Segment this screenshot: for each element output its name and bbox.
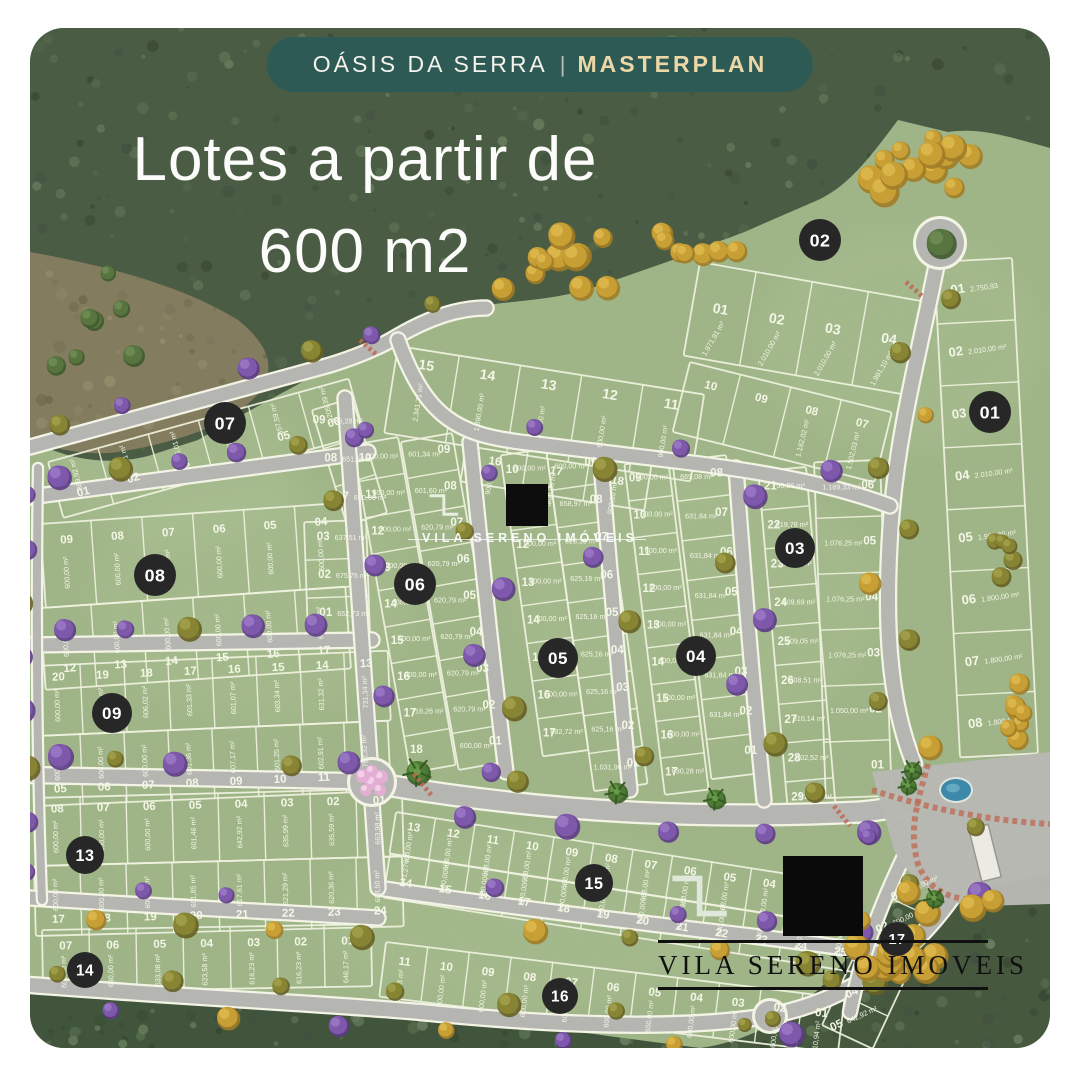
headline-line1: Lotes a partir de [55, 114, 675, 206]
svg-text:600,00 m²: 600,00 m² [50, 878, 60, 911]
svg-text:15: 15 [216, 652, 230, 665]
svg-text:600,00 m²: 600,00 m² [649, 583, 682, 592]
svg-text:608,51 m²: 608,51 m² [789, 675, 822, 684]
svg-text:600,00 m²: 600,00 m² [654, 620, 687, 629]
plan-title-banner: OÁSIS DA SERRA | MASTERPLAN [267, 37, 813, 92]
svg-text:19: 19 [96, 669, 109, 682]
masterplan-poster: 01889,92 m²02625,21 m²03706,01 m²04786,8… [0, 0, 1080, 1080]
svg-text:15: 15 [417, 356, 435, 374]
svg-text:625,16 m²: 625,16 m² [586, 687, 619, 696]
svg-text:03: 03 [824, 319, 842, 337]
banner-separator: | [560, 52, 566, 78]
svg-text:600,00 m²: 600,00 m² [640, 509, 673, 518]
svg-text:02: 02 [810, 230, 831, 250]
svg-text:1.076,25 m²: 1.076,25 m² [828, 650, 867, 659]
svg-text:05: 05 [54, 783, 68, 796]
svg-text:1.076,25 m²: 1.076,25 m² [826, 594, 865, 603]
svg-text:682,72 m²: 682,72 m² [550, 727, 583, 736]
svg-text:08: 08 [111, 530, 125, 543]
svg-text:601,25 m²: 601,25 m² [271, 738, 281, 771]
svg-text:600,00 m²: 600,00 m² [379, 524, 412, 533]
svg-text:12: 12 [601, 385, 619, 403]
svg-text:620,36 m²: 620,36 m² [326, 871, 336, 904]
svg-text:616,23 m²: 616,23 m² [294, 951, 304, 984]
svg-text:04: 04 [686, 647, 706, 666]
svg-text:606,02 m²: 606,02 m² [140, 685, 150, 718]
svg-text:602,91 m²: 602,91 m² [315, 736, 325, 769]
svg-text:06: 06 [606, 981, 620, 994]
svg-text:02: 02 [768, 309, 786, 327]
svg-text:22: 22 [282, 908, 295, 920]
svg-text:02675,75 m²: 02675,75 m² [318, 569, 369, 581]
svg-text:14: 14 [76, 963, 94, 980]
svg-text:600,00 m²: 600,00 m² [667, 730, 700, 739]
svg-text:06: 06 [405, 574, 426, 594]
svg-text:642,92 m²: 642,92 m² [235, 815, 245, 848]
svg-text:15: 15 [272, 662, 286, 675]
svg-text:06: 06 [861, 479, 874, 491]
svg-text:03: 03 [731, 997, 745, 1010]
masterplan-label: MASTERPLAN [578, 51, 768, 78]
svg-text:04: 04 [200, 938, 214, 950]
svg-text:635,59 m²: 635,59 m² [326, 813, 336, 846]
svg-text:630,28 m²: 630,28 m² [672, 766, 705, 775]
svg-text:603,34 m²: 603,34 m² [272, 679, 282, 712]
svg-text:600,00 m²: 600,00 m² [95, 746, 105, 779]
svg-text:05: 05 [153, 939, 167, 951]
svg-text:1.031,96 m²: 1.031,96 m² [594, 762, 633, 771]
svg-text:601,46 m²: 601,46 m² [189, 816, 199, 849]
svg-text:631,32 m²: 631,32 m² [316, 677, 326, 710]
svg-text:03: 03 [867, 647, 880, 659]
svg-text:600,00 m²: 600,00 m² [405, 670, 438, 679]
svg-text:08: 08 [51, 803, 65, 815]
watermark-bottom-text: VILA SERENO IMOVEIS [658, 940, 988, 990]
svg-text:02: 02 [327, 796, 340, 808]
svg-text:620,79 m²: 620,79 m² [428, 559, 461, 568]
svg-text:619,78 m²: 619,78 m² [776, 520, 809, 529]
svg-text:625,16 m²: 625,16 m² [581, 649, 614, 658]
svg-text:620,79 m²: 620,79 m² [453, 705, 486, 714]
svg-text:16: 16 [267, 648, 281, 661]
svg-text:600,00 m²: 600,00 m² [51, 820, 61, 853]
svg-text:17: 17 [184, 665, 197, 678]
svg-text:609,05 m²: 609,05 m² [786, 637, 819, 646]
svg-text:01652,73 m²: 01652,73 m² [319, 607, 370, 619]
svg-text:09: 09 [230, 775, 243, 788]
svg-text:23: 23 [328, 906, 341, 918]
svg-text:16: 16 [228, 663, 241, 676]
svg-text:600,00 m²: 600,00 m² [52, 689, 62, 722]
svg-text:01: 01 [871, 759, 884, 771]
svg-text:13: 13 [540, 375, 558, 393]
svg-text:1.076,25 m²: 1.076,25 m² [824, 538, 863, 547]
svg-text:13: 13 [114, 659, 128, 672]
svg-text:07: 07 [59, 940, 72, 952]
svg-text:08: 08 [523, 971, 538, 985]
svg-text:07: 07 [162, 527, 176, 540]
svg-text:01: 01 [980, 402, 1001, 422]
svg-text:609,69 m²: 609,69 m² [783, 598, 816, 607]
svg-text:04: 04 [689, 991, 704, 1005]
svg-text:620,79 m²: 620,79 m² [440, 632, 473, 641]
watermark-center-text: VILA SERENO IMÓVEIS [422, 531, 632, 545]
svg-text:625,16 m²: 625,16 m² [591, 725, 624, 734]
masterplan-map: 01889,92 m²02625,21 m²03706,01 m²04786,8… [30, 28, 1050, 1048]
svg-text:601,85 m²: 601,85 m² [188, 874, 198, 907]
svg-text:631,84 m²: 631,84 m² [695, 591, 728, 600]
svg-text:05: 05 [189, 800, 203, 812]
svg-text:03637,51 m²: 03637,51 m² [317, 531, 368, 543]
svg-text:07: 07 [97, 802, 110, 814]
svg-text:600,00 m²: 600,00 m² [663, 693, 696, 702]
svg-text:600,00 m²: 600,00 m² [534, 614, 567, 623]
svg-text:03: 03 [785, 539, 805, 558]
svg-text:03: 03 [247, 937, 260, 949]
svg-text:750,99 m²: 750,99 m² [772, 481, 805, 490]
svg-text:601,07 m²: 601,07 m² [228, 681, 238, 714]
svg-text:09: 09 [60, 534, 74, 547]
svg-text:05: 05 [263, 519, 277, 532]
svg-text:617,61 m²: 617,61 m² [234, 873, 244, 906]
svg-text:1.050,00 m²: 1.050,00 m² [830, 706, 869, 715]
svg-text:625,16 m²: 625,16 m² [570, 574, 603, 583]
svg-text:01: 01 [712, 300, 730, 318]
svg-text:09: 09 [102, 704, 122, 723]
svg-text:17: 17 [52, 914, 65, 926]
svg-text:14: 14 [479, 366, 497, 384]
svg-text:610,14 m²: 610,14 m² [793, 714, 826, 723]
svg-text:688,50 m²: 688,50 m² [372, 870, 382, 903]
vila-sereno-logo-icon-large [783, 856, 863, 936]
svg-text:03: 03 [281, 797, 294, 809]
svg-text:601,34 m²: 601,34 m² [408, 450, 441, 459]
svg-text:19: 19 [144, 911, 157, 923]
svg-text:616,23 m²: 616,23 m² [247, 952, 257, 985]
svg-text:01: 01 [373, 795, 387, 807]
svg-text:05: 05 [863, 535, 876, 547]
svg-text:600,00 m²: 600,00 m² [645, 546, 678, 555]
watermark-center: VILA SERENO IMÓVEIS [422, 484, 632, 545]
svg-text:10: 10 [273, 774, 286, 787]
svg-text:21: 21 [236, 909, 250, 921]
project-name: OÁSIS DA SERRA [313, 51, 548, 78]
svg-text:09: 09 [481, 966, 495, 979]
svg-text:600,00 m²: 600,00 m² [139, 744, 149, 777]
svg-text:11: 11 [663, 395, 680, 413]
svg-text:14: 14 [165, 655, 179, 668]
svg-text:600,00 m²: 600,00 m² [366, 452, 399, 461]
svg-text:620,79 m²: 620,79 m² [434, 595, 467, 604]
svg-text:631,84 m²: 631,84 m² [709, 710, 742, 719]
svg-text:1.169,33 m²: 1.169,33 m² [822, 482, 861, 491]
svg-text:08: 08 [145, 565, 166, 585]
svg-text:601,33 m²: 601,33 m² [184, 683, 194, 716]
svg-text:623,58 m²: 623,58 m² [200, 952, 210, 985]
svg-text:12: 12 [63, 662, 77, 675]
svg-text:600,00 m²: 600,00 m² [545, 689, 578, 698]
svg-text:01: 01 [814, 1007, 829, 1021]
svg-text:625,16 m²: 625,16 m² [576, 612, 609, 621]
svg-text:24: 24 [374, 905, 388, 917]
svg-text:13: 13 [360, 658, 373, 671]
svg-text:18: 18 [140, 667, 154, 680]
svg-text:13: 13 [76, 847, 95, 865]
svg-text:06: 06 [143, 801, 156, 813]
watermark-bottom: VILA SERENO IMOVEIS [658, 856, 988, 990]
svg-text:18: 18 [410, 744, 423, 756]
svg-text:600,00 m²: 600,00 m² [513, 464, 546, 473]
svg-text:02: 02 [294, 936, 307, 948]
svg-text:663,98 m²: 663,98 m² [372, 812, 382, 845]
svg-text:20: 20 [52, 671, 65, 684]
headline-line2: 600 m2 [55, 206, 675, 298]
svg-text:607,17 m²: 607,17 m² [227, 740, 237, 773]
svg-text:630,00 m²: 630,00 m² [106, 954, 116, 987]
svg-text:600,00 m²: 600,00 m² [372, 488, 405, 497]
svg-text:783,32 m²: 783,32 m² [359, 734, 369, 767]
svg-text:600,00 m²: 600,00 m² [398, 634, 431, 643]
svg-text:14: 14 [316, 660, 330, 673]
svg-text:600,00 m²: 600,00 m² [143, 818, 153, 851]
svg-text:600,00 m²: 600,00 m² [460, 741, 493, 750]
svg-text:06: 06 [213, 523, 227, 536]
svg-text:718,26 m²: 718,26 m² [411, 707, 444, 716]
svg-text:648,17 m²: 648,17 m² [341, 950, 351, 983]
svg-text:600,00 m²: 600,00 m² [636, 473, 669, 482]
svg-text:620,79 m²: 620,79 m² [447, 668, 480, 677]
svg-text:06: 06 [98, 781, 111, 794]
svg-text:06: 06 [106, 939, 119, 951]
svg-text:01: 01 [744, 745, 757, 757]
svg-text:10: 10 [439, 961, 453, 974]
svg-text:11: 11 [398, 956, 412, 969]
svg-text:600,00 m²: 600,00 m² [529, 576, 562, 585]
svg-text:07: 07 [142, 779, 155, 792]
headline: Lotes a partir de 600 m2 [55, 114, 675, 298]
svg-text:11: 11 [318, 772, 331, 785]
svg-text:07: 07 [215, 413, 236, 433]
svg-text:09796,28 m²: 09796,28 m² [313, 414, 364, 426]
svg-text:17: 17 [317, 644, 331, 657]
svg-text:05: 05 [548, 649, 568, 668]
svg-text:633,08 m²: 633,08 m² [153, 953, 163, 986]
svg-text:621,29 m²: 621,29 m² [280, 872, 290, 905]
svg-text:08: 08 [186, 777, 200, 790]
svg-text:669,08 m²: 669,08 m² [680, 472, 713, 481]
svg-text:16: 16 [551, 989, 569, 1006]
svg-text:04: 04 [314, 516, 328, 529]
svg-text:731,34 m²: 731,34 m² [360, 675, 370, 708]
svg-text:602,52 m²: 602,52 m² [796, 753, 829, 762]
svg-text:600,00 m²: 600,00 m² [96, 877, 106, 910]
vila-sereno-logo-icon [506, 484, 548, 526]
svg-text:631,84 m²: 631,84 m² [685, 512, 718, 521]
svg-text:15: 15 [585, 875, 604, 893]
svg-text:04: 04 [235, 798, 249, 810]
svg-text:635,99 m²: 635,99 m² [281, 814, 291, 847]
